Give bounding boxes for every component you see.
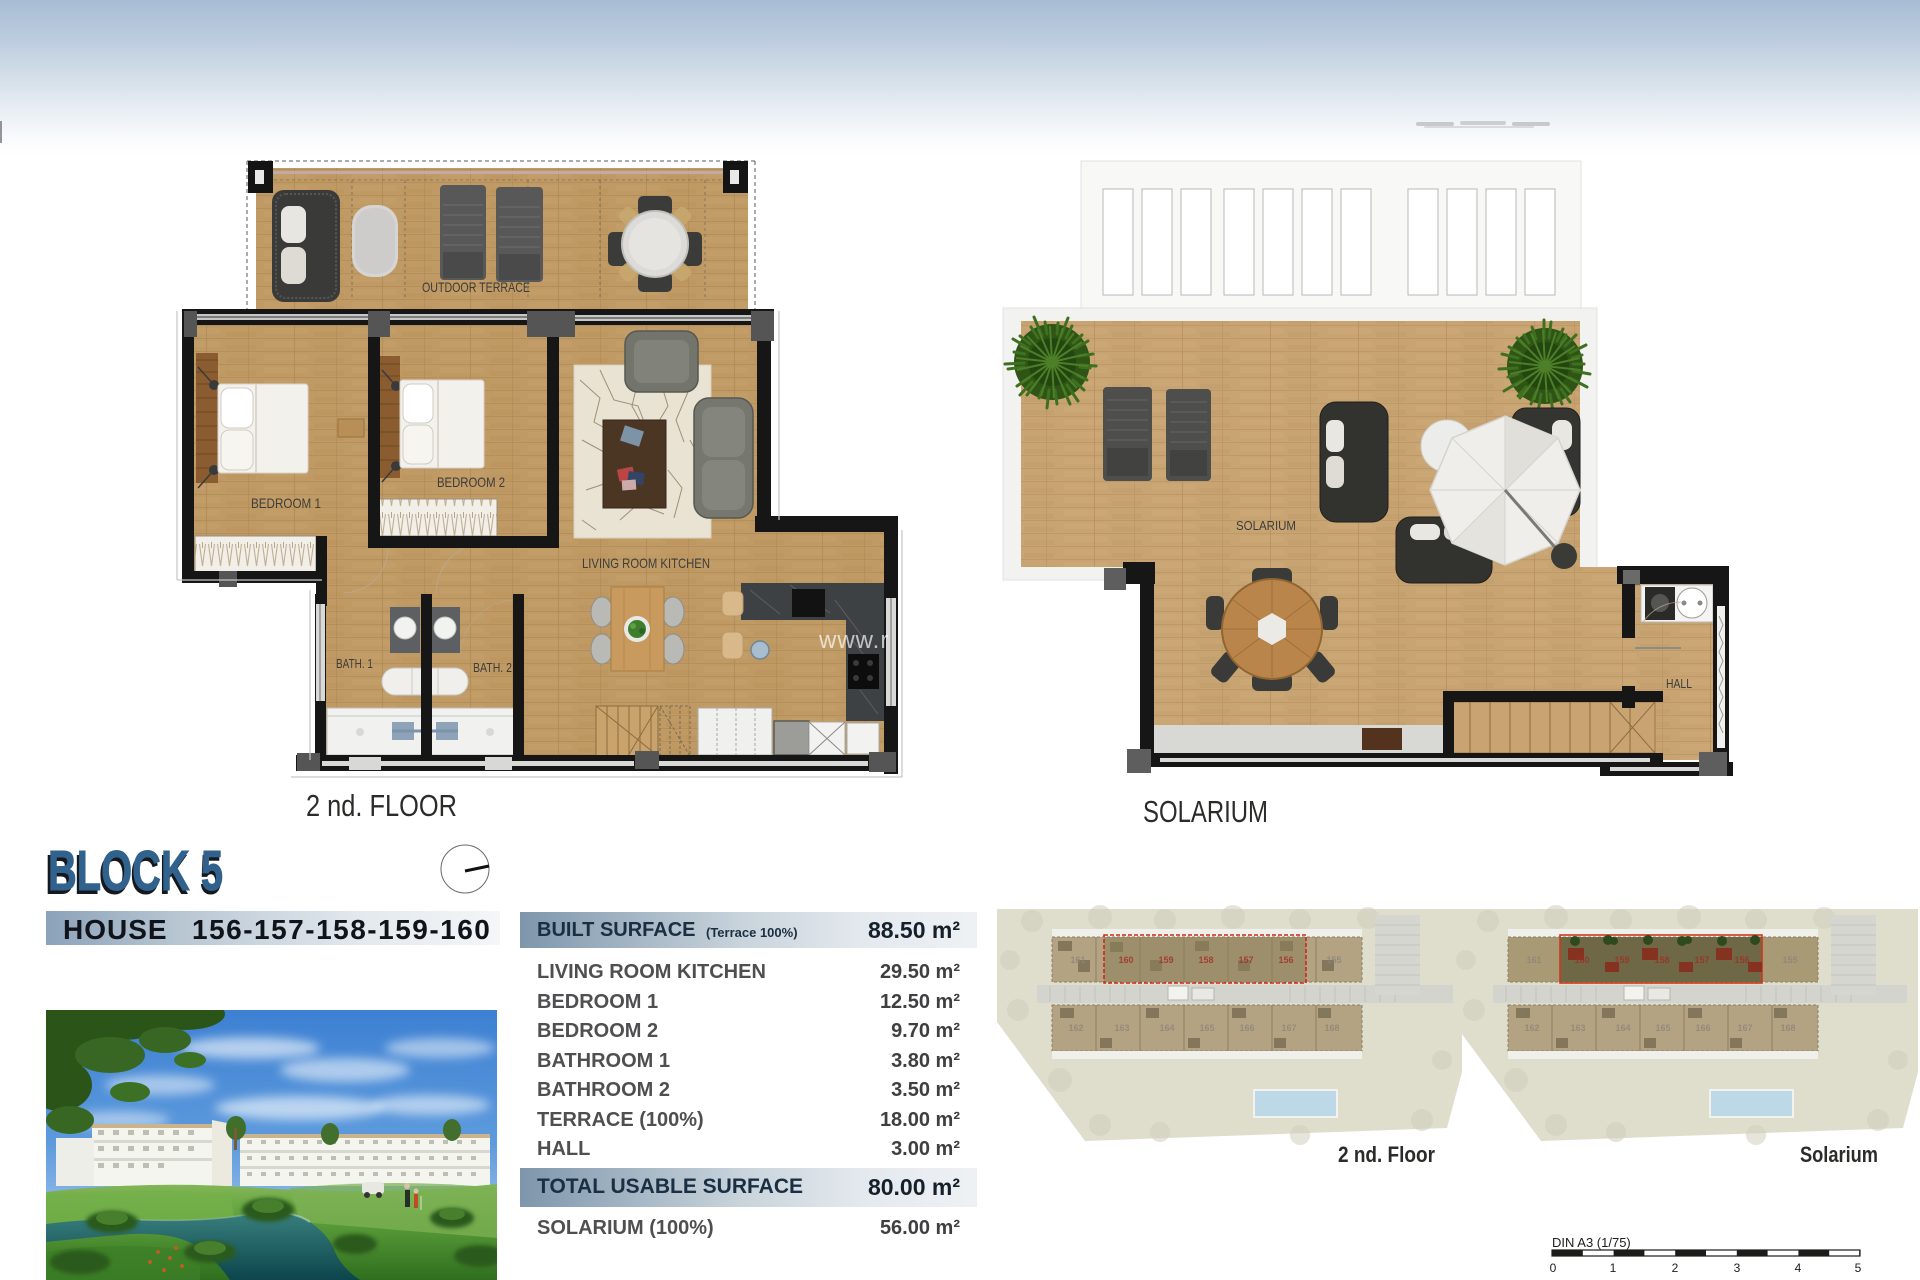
svg-text:158: 158 [1654,955,1669,965]
svg-text:HALL: HALL [1666,676,1692,691]
svg-text:3: 3 [1734,1261,1741,1275]
svg-text:BATH. 2: BATH. 2 [473,660,512,675]
svg-text:BATH. 1: BATH. 1 [336,656,373,671]
svg-text:156: 156 [1734,955,1749,965]
svg-text:164: 164 [1159,1023,1174,1033]
svg-text:156: 156 [1278,955,1293,965]
svg-text:161: 161 [1526,955,1541,965]
svg-text:BEDROOM 1: BEDROOM 1 [251,495,321,511]
svg-text:www.r: www.r [818,627,889,654]
svg-text:161: 161 [1070,955,1085,965]
svg-text:4: 4 [1795,1261,1802,1275]
svg-text:160: 160 [1118,955,1133,965]
svg-text:164: 164 [1615,1023,1630,1033]
svg-text:168: 168 [1780,1023,1795,1033]
svg-text:5: 5 [1855,1261,1862,1275]
svg-text:2: 2 [1672,1261,1679,1275]
svg-text:1: 1 [1610,1261,1617,1275]
svg-text:Solarium: Solarium [1800,1142,1878,1167]
svg-text:163: 163 [1114,1023,1129,1033]
svg-text:2 nd. Floor: 2 nd. Floor [1338,1142,1435,1167]
svg-text:LIVING ROOM KITCHEN: LIVING ROOM KITCHEN [582,555,710,571]
svg-text:160: 160 [1574,955,1589,965]
svg-text:0: 0 [1550,1261,1557,1275]
svg-text:168: 168 [1324,1023,1339,1033]
svg-text:SOLARIUM: SOLARIUM [1143,794,1268,829]
svg-text:BEDROOM 2: BEDROOM 2 [437,474,505,490]
svg-text:163: 163 [1570,1023,1585,1033]
svg-text:166: 166 [1695,1023,1710,1033]
svg-text:OUTDOOR TERRACE: OUTDOOR TERRACE [422,279,530,295]
svg-text:167: 167 [1737,1023,1752,1033]
svg-text:165: 165 [1199,1023,1214,1033]
svg-text:159: 159 [1158,955,1173,965]
svg-text:158: 158 [1198,955,1213,965]
svg-text:157: 157 [1694,955,1709,965]
svg-text:166: 166 [1239,1023,1254,1033]
svg-text:167: 167 [1281,1023,1296,1033]
svg-text:155: 155 [1782,955,1797,965]
svg-text:159: 159 [1614,955,1629,965]
svg-text:155: 155 [1326,955,1341,965]
svg-text:165: 165 [1655,1023,1670,1033]
svg-text:162: 162 [1068,1023,1083,1033]
svg-text:157: 157 [1238,955,1253,965]
svg-text:2 nd. FLOOR: 2 nd. FLOOR [306,788,457,823]
svg-text:DIN A3 (1/75): DIN A3 (1/75) [1552,1235,1631,1250]
svg-text:SOLARIUM: SOLARIUM [1236,518,1296,533]
svg-text:BLOCK 5: BLOCK 5 [48,839,223,903]
svg-text:162: 162 [1524,1023,1539,1033]
